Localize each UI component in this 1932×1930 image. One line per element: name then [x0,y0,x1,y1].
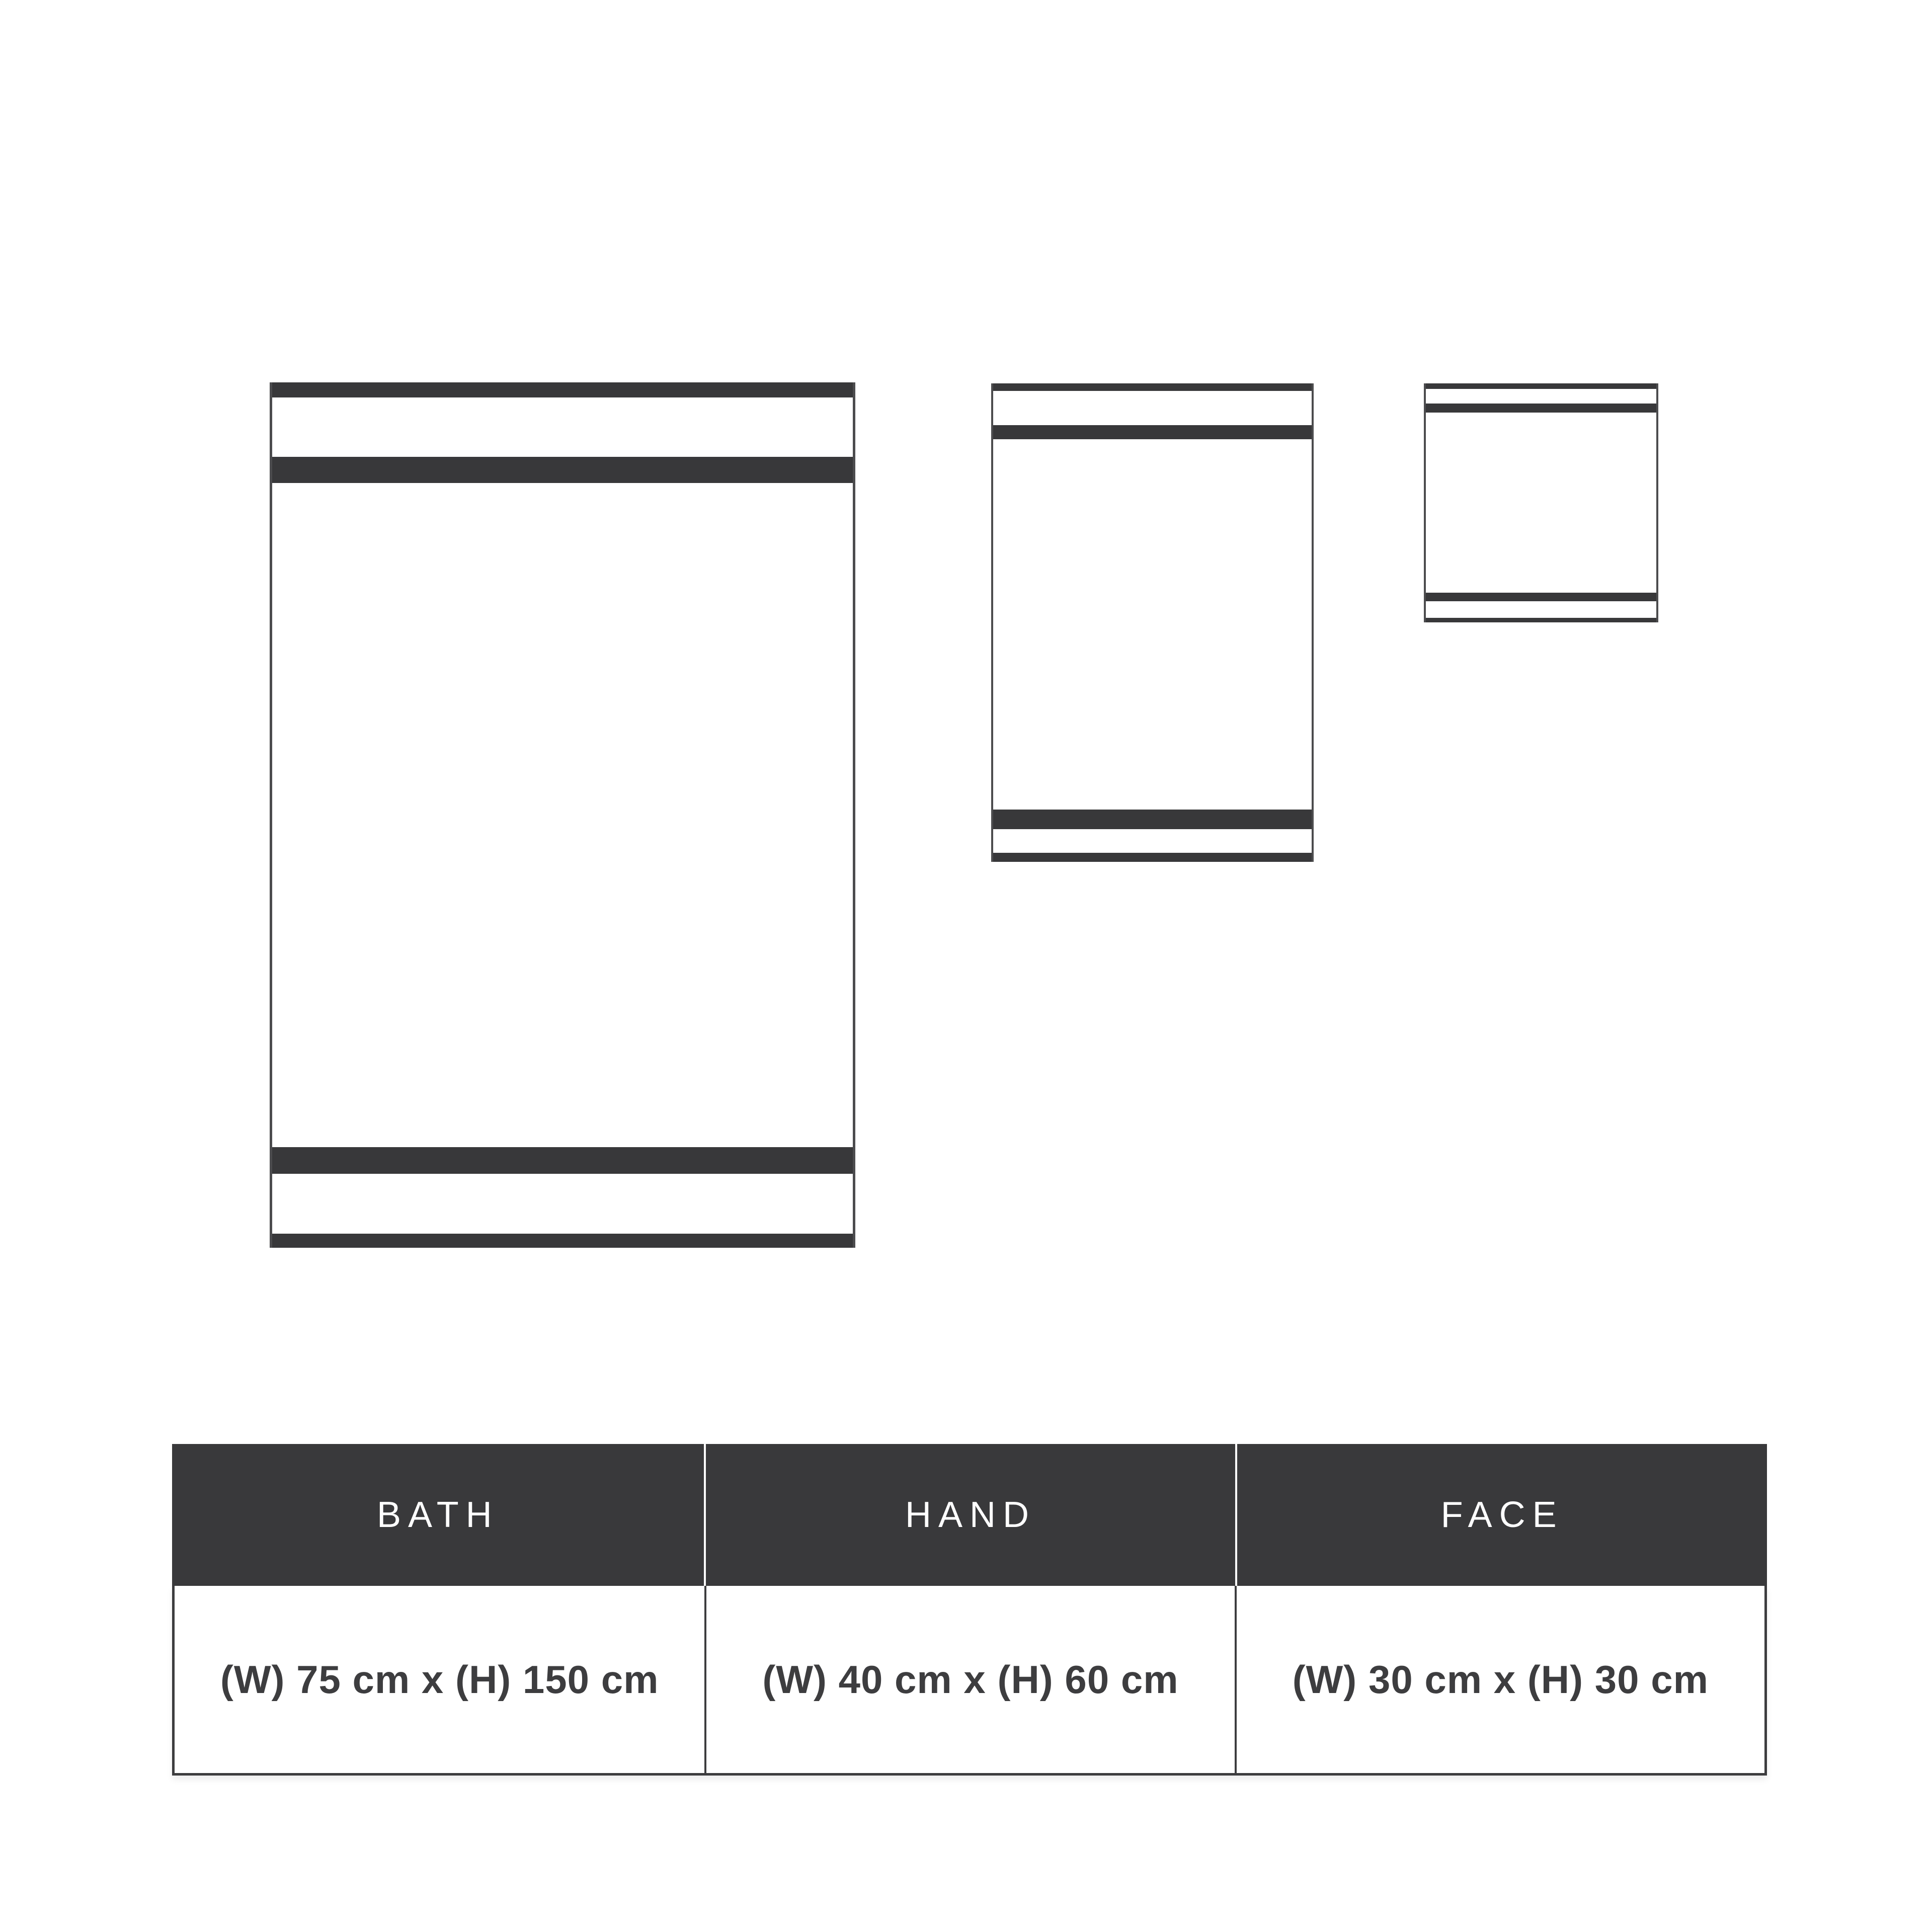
hand-towel-bottom-stripe [993,810,1312,829]
bath-towel-top-hem [272,382,853,397]
size-table-cell-bath-dimensions: (W) 75 cm x (H) 150 cm [175,1586,704,1773]
hand-towel-top-stripe [993,425,1312,439]
towel-size-chart: BATH HAND FACE (W) 75 cm x (H) 150 cm (W… [0,0,1932,1930]
size-table-header-bath: BATH [172,1444,704,1586]
size-table-cell-face-dimensions: (W) 30 cm x (H) 30 cm [1235,1586,1764,1773]
face-towel-top-stripe [1426,404,1656,413]
bath-towel-bottom-stripe [272,1147,853,1174]
hand-towel-bottom-hem [993,853,1312,862]
face-towel-bottom-stripe [1426,593,1656,601]
size-table-header-hand: HAND [704,1444,1236,1586]
hand-towel-graphic [991,383,1314,862]
bath-towel-bottom-hem [272,1234,853,1248]
bath-towel-top-stripe [272,457,853,483]
face-towel-top-hem [1426,383,1656,389]
hand-towel-top-hem [993,383,1312,391]
size-table-body-row: (W) 75 cm x (H) 150 cm (W) 40 cm x (H) 6… [172,1586,1767,1776]
size-table: BATH HAND FACE (W) 75 cm x (H) 150 cm (W… [172,1444,1767,1776]
face-towel-graphic [1424,383,1658,622]
bath-towel-graphic [270,382,855,1248]
size-table-header-face: FACE [1235,1444,1767,1586]
size-table-cell-hand-dimensions: (W) 40 cm x (H) 60 cm [704,1586,1234,1773]
face-towel-bottom-hem [1426,618,1656,622]
size-table-header-row: BATH HAND FACE [172,1444,1767,1586]
